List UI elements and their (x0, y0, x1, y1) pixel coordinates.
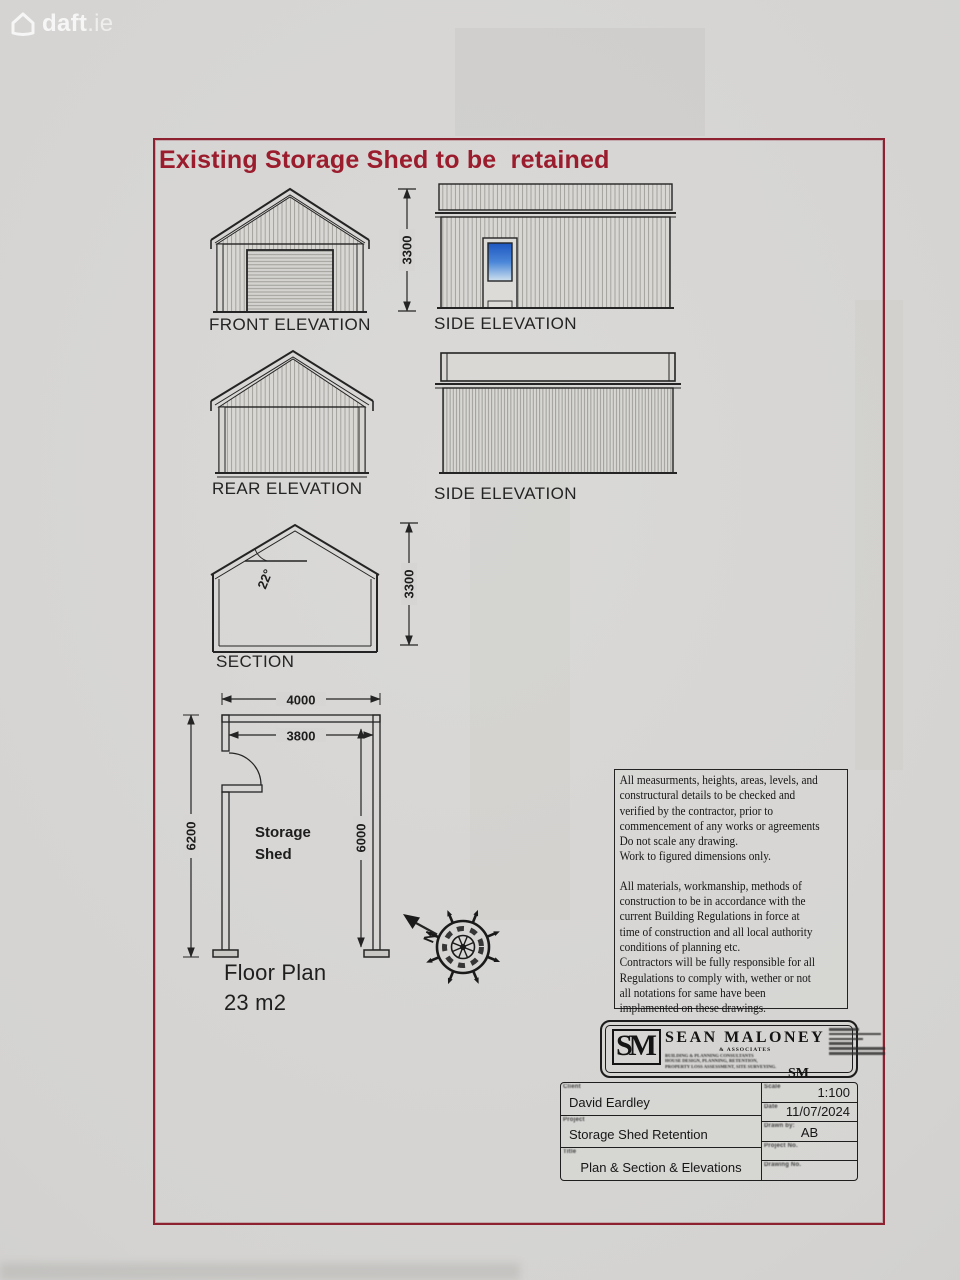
north-arrow-compass: N (393, 903, 505, 987)
drawing-title-label: Title (563, 1149, 576, 1155)
client-label: Client (563, 1084, 581, 1090)
front-height-dimension: 3300 (390, 184, 424, 316)
paper-bleedthrough (455, 28, 705, 136)
dim-text-4000: 4000 (287, 693, 316, 708)
section-label: SECTION (216, 652, 294, 672)
section-height-dimension: 3300 (392, 518, 426, 650)
scale-label: Scale (764, 1084, 781, 1090)
room-name-line1: Storage (255, 824, 311, 841)
drawn-by-cell: Drawn by: AB (762, 1122, 857, 1142)
front-elevation-label: FRONT ELEVATION (209, 315, 371, 335)
drawing-title-value: Plan & Section & Elevations (561, 1160, 761, 1175)
photo-edge-shadow (0, 1263, 520, 1280)
plan-left-wall-upper (222, 715, 229, 751)
daft-house-icon (10, 12, 36, 36)
title-block: Client David Eardley Project Storage She… (560, 1082, 858, 1181)
company-address-illegible (829, 1028, 885, 1055)
scale-value: 1:100 (817, 1085, 850, 1100)
side-elevation-2-label: SIDE ELEVATION (434, 484, 577, 504)
drawing-title-cell: Title Plan & Section & Elevations (561, 1148, 761, 1180)
project-no-cell: Project No. (762, 1142, 857, 1162)
client-value: David Eardley (569, 1095, 650, 1110)
date-cell: Date 11/07/2024 (762, 1103, 857, 1123)
drawing-no-cell: Drawing No. (762, 1161, 857, 1180)
side-elevation-1-label: SIDE ELEVATION (434, 314, 577, 334)
door-leaf (222, 785, 262, 792)
floor-plan-label: Floor Plan (224, 960, 326, 986)
project-cell: Project Storage Shed Retention (561, 1116, 761, 1149)
floor-plan-drawing: 4000 3800 6200 6000 Storage Shed (175, 685, 400, 980)
company-stamp: SM (788, 1066, 809, 1082)
plan-right-wall (373, 715, 380, 950)
project-label: Project (563, 1117, 585, 1123)
dim-text-6200: 6200 (184, 822, 199, 851)
right-footing (364, 950, 389, 957)
date-label: Date (764, 1104, 778, 1110)
roller-door (247, 250, 333, 312)
project-value: Storage Shed Retention (569, 1127, 708, 1142)
company-name: SEAN MALONEY (665, 1029, 825, 1047)
dim-text-6000: 6000 (354, 824, 369, 853)
side-elevation-2-drawing (433, 347, 683, 485)
company-services: BUILDING & PLANNING CONSULTANTS HOUSE DE… (665, 1053, 776, 1069)
general-notes-box: All measurments, heights, areas, levels,… (614, 769, 848, 1009)
door-swing-arc (229, 753, 261, 785)
daft-brand-bold: daft (42, 10, 87, 37)
roof-pitch-text: 22° (254, 567, 275, 591)
notes-paragraph-1: All measurments, heights, areas, levels,… (620, 773, 848, 865)
floor-plan-area: 23 m2 (224, 990, 286, 1016)
plan-left-wall-lower (222, 792, 229, 950)
daft-brand-tld: .ie (87, 10, 113, 37)
left-footing (213, 950, 238, 957)
notes-paragraph-2: All materials, workmanship, methods of c… (620, 879, 848, 1017)
company-initials: SM (612, 1029, 661, 1065)
company-logo-block: SM SEAN MALONEY & ASSOCIATES BUILDING & … (600, 1020, 858, 1078)
date-value: 11/07/2024 (786, 1104, 850, 1119)
north-arrowhead (403, 914, 420, 929)
room-name-line2: Shed (255, 846, 292, 863)
pitch-angle-arc (255, 549, 267, 561)
drawn-by-value: AB (762, 1125, 857, 1140)
project-no-label: Project No. (764, 1143, 798, 1149)
door-window (488, 243, 512, 281)
drawing-no-label: Drawing No. (764, 1162, 801, 1168)
plan-top-wall (222, 715, 380, 722)
dim-text-3300: 3300 (400, 236, 415, 265)
rear-elevation-drawing (205, 343, 380, 483)
scale-cell: Scale 1:100 (762, 1083, 857, 1103)
rear-elevation-label: REAR ELEVATION (212, 479, 362, 499)
sheet-title: Existing Storage Shed to be retained (159, 146, 610, 175)
dim-text-3300: 3300 (402, 570, 417, 599)
front-elevation-drawing (205, 182, 375, 318)
section-drawing: 22° (205, 515, 385, 663)
daft-brand: daft.ie (42, 10, 113, 38)
dim-text-3800: 3800 (287, 729, 316, 744)
compass-wheel (425, 909, 501, 985)
daft-watermark: daft.ie (10, 10, 113, 38)
client-cell: Client David Eardley (561, 1083, 761, 1116)
photo-of-architectural-drawing: daft.ie Existing Storage Shed to be reta… (0, 0, 960, 1280)
side-elevation-1-drawing (433, 180, 678, 320)
